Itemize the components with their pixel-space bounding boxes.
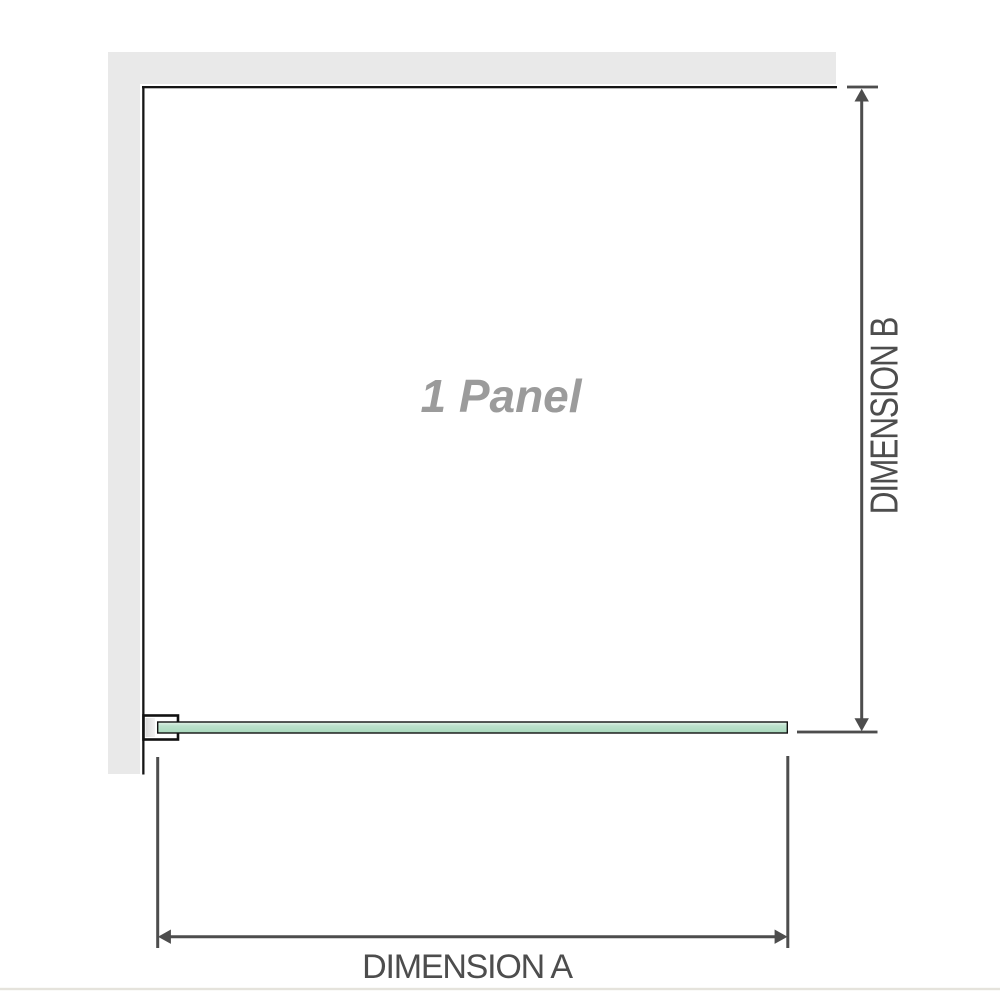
svg-text:DIMENSION A: DIMENSION A [362, 948, 573, 986]
svg-text:DIMENSION B: DIMENSION B [862, 318, 906, 515]
svg-text:1 Panel: 1 Panel [420, 370, 582, 422]
